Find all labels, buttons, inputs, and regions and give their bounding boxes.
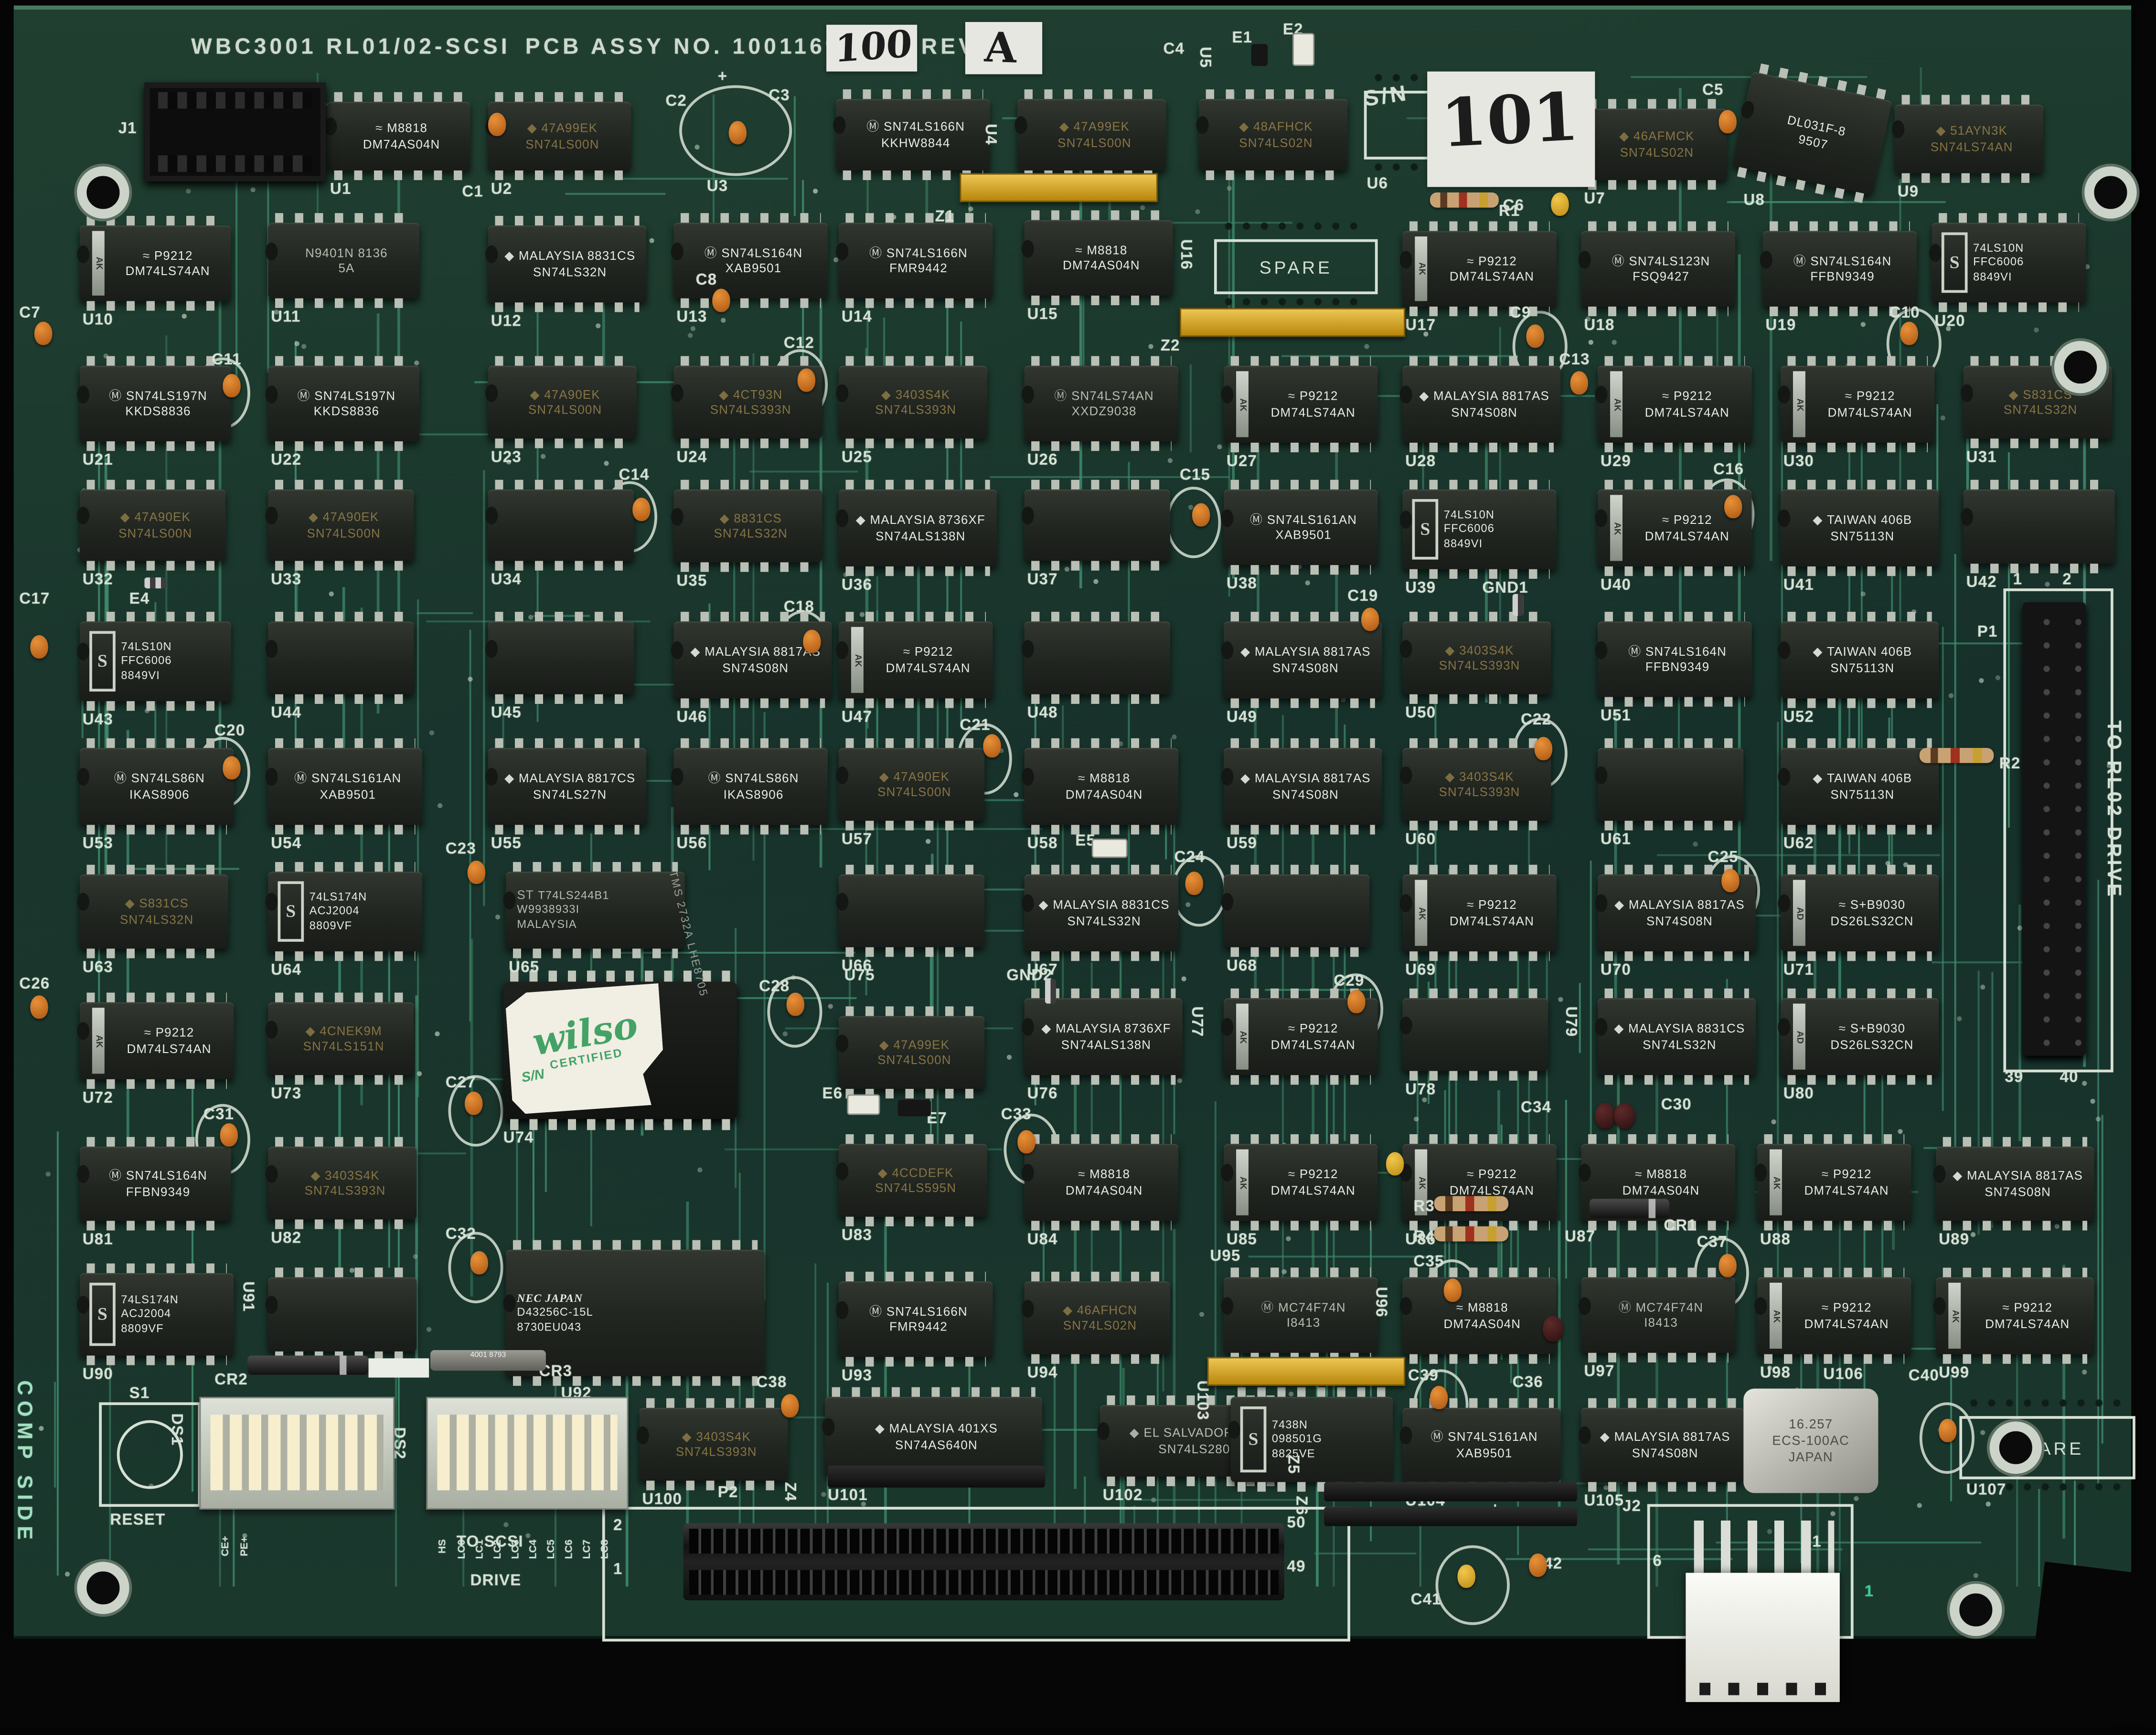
chip-marking-line: ⓂSN74LS166N [850, 1304, 987, 1319]
chip-notch [836, 510, 848, 527]
chip-U26: ⓂSN74LS74ANXXDZ9038 [1025, 366, 1178, 441]
capacitor [798, 369, 815, 392]
chip-notch [836, 766, 848, 783]
chip-notch [1221, 509, 1233, 526]
chip-U39: S74LS10NFFC60068849VI [1402, 490, 1556, 569]
silk-label-U74: U74 [503, 1130, 534, 1147]
chip-marking-line: SN74LS393N [651, 1445, 782, 1459]
ref-label-U60: U60 [1405, 832, 1436, 849]
chip-notch [833, 116, 846, 134]
silk-label-C22: C22 [1521, 712, 1551, 729]
chip-marking-line: DM74LS74AN [1254, 1183, 1372, 1197]
chip-marking: ≈P9212DM74LS74AN [1787, 1150, 1906, 1215]
band-text: AK [94, 1034, 103, 1047]
assy-number-sticker: 100 [826, 25, 917, 72]
crystal-oscillator-u106: 16.257 ECS-100AC JAPAN [1743, 1389, 1878, 1493]
reset-label: RESET [110, 1512, 165, 1529]
jumper [1092, 839, 1128, 858]
chip-U100: ◆3403S4KSN74LS393N [640, 1408, 788, 1481]
ref-label-U4: U4 [982, 124, 998, 145]
spare-label: SPARE [1259, 256, 1333, 277]
chip-marking: ≈P9212DM74LS74AN [110, 1008, 228, 1074]
chip-marking-line: ⓂSN74LS123N [1592, 254, 1730, 268]
ti-logo-icon: ◆ [504, 771, 514, 785]
chip-marking-line: ◆48AFHCK [1210, 119, 1342, 134]
capacitor [1529, 1554, 1547, 1577]
ns-logo-icon: ≈ [1288, 389, 1295, 403]
capacitor [488, 113, 506, 136]
ref-label-U76: U76 [1027, 1086, 1057, 1103]
chip-notch [1595, 1018, 1607, 1036]
chip-marking-line: DM74LS74AN [1628, 529, 1746, 543]
chip-marking-line: ◆MALAYSIA 8817AS [1947, 1169, 2089, 1183]
ref-label-U18: U18 [1584, 318, 1614, 334]
capacitor [465, 1092, 482, 1115]
chip-marking-line: 74LS174N [310, 891, 417, 904]
chip-notch [1400, 1426, 1412, 1444]
chip-U23: ◆47A90EKSN74LS00N [488, 366, 637, 439]
chip-marking-line: DM74LS74AN [1433, 269, 1551, 284]
ref-label-U95: U95 [1210, 1248, 1240, 1265]
chip-marking: ◆MALAYSIA 8736XFSN74ALS138N [1035, 1004, 1177, 1070]
chip-marking: 74LS174NACJ20048809VF [310, 877, 417, 946]
silk-label-C37: C37 [1697, 1235, 1727, 1251]
ref-label-U29: U29 [1601, 454, 1631, 470]
chip-marking-line: FSQ9427 [1592, 269, 1730, 284]
chip-notch [77, 507, 89, 524]
chip-marking-line: SN75113N [1792, 529, 1933, 543]
chip-marking-line: ⓂSN74LS197N [279, 388, 414, 403]
chip-marking-line: ◆4CNEK9M [279, 1023, 408, 1038]
chip-marking: ◆47A90EKSN74LS00N [91, 495, 220, 555]
ref-label-U88: U88 [1760, 1232, 1791, 1248]
silk-label-: + [718, 69, 728, 85]
capacitor [1192, 503, 1210, 527]
chip-marking: ◆TAIWAN 406BSN75113N [1792, 627, 1933, 693]
chip-marking-line: SN74S08N [1235, 660, 1377, 675]
chip-marking-line: DS26LS32CN [1811, 914, 1933, 928]
chip-notch [1579, 1297, 1591, 1314]
silk-label-C31: C31 [203, 1107, 234, 1123]
led-bar-display [426, 1397, 628, 1510]
ref-label-U100: U100 [642, 1491, 682, 1508]
chip-marking-line: ≈S+B9030 [1811, 1022, 1933, 1036]
chip-marking-line: XAB9501 [279, 787, 416, 801]
chip-marking: ◆3403S4KSN74LS393N [850, 371, 982, 433]
chip-marking-line: DM74LS74AN [1433, 1183, 1551, 1197]
ref-label-U1: U1 [330, 181, 352, 198]
chip-marking-line: NEC JAPAN [517, 1292, 759, 1305]
chip-notch [1961, 383, 1973, 401]
silk-label-LC4: LC4 [527, 1540, 539, 1559]
silk-label-S1: S1 [129, 1386, 150, 1403]
chip-marking-line: SN74LS00N [499, 137, 626, 151]
chip-marking-line: ◆MALAYSIA 8817CS [499, 771, 641, 786]
chip-notch [1015, 116, 1027, 134]
ns-logo-icon: ≈ [2002, 1300, 2009, 1314]
chip-marking: ≈P9212DM74LS74AN [1254, 371, 1372, 437]
chip-marking: ◆3403S4KSN74LS393N [1413, 754, 1545, 816]
ti-logo-icon: ◆ [1619, 129, 1629, 143]
chip-marking: ≈M8818DM74AS04N [1413, 1283, 1551, 1349]
chip-marking-line: ◆47A99EK [1028, 119, 1160, 134]
sip-socket-strip [1324, 1507, 1577, 1526]
chip-notch [836, 1300, 848, 1318]
ref-label-U83: U83 [842, 1228, 872, 1245]
capacitor [1185, 872, 1203, 895]
ref-label-U15: U15 [1027, 307, 1057, 323]
capacitor [1444, 1278, 1462, 1302]
ref-label-U63: U63 [83, 959, 113, 976]
chip-marking-line: SN74LS02N [1210, 136, 1342, 150]
silk-label-C2: C2 [665, 94, 687, 110]
chip-marking-line: ⓂSN74LS74AN [1035, 388, 1173, 403]
ti-logo-icon: ◆ [1614, 1022, 1624, 1035]
chip-marking-line: DM74LS74AN [1966, 1316, 2089, 1331]
chip-U61 [1598, 748, 1743, 821]
signetics-logo-icon: S [89, 631, 116, 692]
silk-label-C15: C15 [1180, 468, 1210, 484]
chip-marking-line: DM74AS04N [338, 137, 465, 151]
chip-notch [1400, 250, 1412, 268]
chip-marking: ◆47A99EKSN74LS00N [1028, 105, 1160, 165]
chip-marking-line: ACJ2004 [310, 905, 417, 918]
silk-label-DS1: DS1 [168, 1413, 184, 1446]
mot-logo-icon: Ⓜ [1628, 644, 1641, 658]
chip-marking: ⓂSN74LS197NKKDS8836 [279, 371, 414, 436]
jumper [1513, 594, 1524, 616]
chip-marking: ≈P9212DM74LS74AN [1811, 371, 1929, 437]
mot-logo-icon: Ⓜ [869, 245, 882, 259]
chip-marking [1413, 1004, 1543, 1066]
mot-logo-icon: Ⓜ [1619, 1300, 1632, 1314]
chip-band: AK [1610, 495, 1622, 561]
chip-U78 [1402, 998, 1548, 1071]
chip-U51: ⓂSN74LS164NFFBN9349 [1598, 621, 1751, 697]
capacitor [1535, 737, 1552, 760]
silk-label-Z5: Z5 [1284, 1455, 1301, 1474]
chip-marking [1609, 754, 1738, 816]
silk-label-U6: U6 [1367, 176, 1388, 192]
chip-marking: 74LS10NFFC60068849VI [1444, 495, 1551, 564]
mot-logo-icon: Ⓜ [1431, 1430, 1444, 1444]
silk-label-U106: U106 [1823, 1367, 1863, 1384]
chip-U35: ◆8831CSSN74LS32N [674, 490, 822, 563]
chip-marking-line: SN74LS393N [279, 1184, 411, 1198]
socket-hole-row [1219, 296, 1366, 308]
silk-label-C5: C5 [1702, 83, 1724, 99]
chip-marking: ⓂSN74LS164NFFBN9349 [1609, 627, 1746, 692]
chip-marking-line: ⓂSN74LS161AN [1235, 512, 1372, 526]
chip-notch [1022, 639, 1034, 657]
chip-band: AK [92, 1008, 105, 1074]
band-text: AK [1416, 1176, 1426, 1189]
chip-notch [671, 641, 683, 659]
chip-marking-line: DM74LS74AN [1811, 405, 1929, 419]
chip-marking: ◆47A99EKSN74LS00N [850, 1022, 979, 1084]
silk-label-P1: P1 [1977, 624, 1998, 641]
ti-logo-icon: ◆ [1445, 643, 1455, 657]
chip-notch [1400, 766, 1412, 783]
sticker-sn-text: S/N [520, 1067, 545, 1086]
chip-notch [1022, 239, 1034, 257]
silk-label-C24: C24 [1174, 850, 1205, 866]
silk-label-C19: C19 [1347, 588, 1378, 605]
crystal-frequency: 16.257 [1789, 1417, 1833, 1432]
chip-notch [1022, 768, 1034, 786]
eprom-u74: wilso CERTIFIED S/N TMS 2732A LHE8705 [503, 981, 737, 1119]
chip-marking-line: N9401N 8136 [279, 245, 414, 260]
chip-notch [266, 893, 278, 911]
chip-U15: ≈M8818DM74AS04N [1025, 220, 1173, 296]
capacitor [1719, 110, 1737, 133]
silk-label-CR1: CR1 [1664, 1218, 1697, 1235]
ti-logo-icon: ◆ [1419, 389, 1429, 403]
ti-logo-icon: ◆ [1130, 1426, 1140, 1439]
chip-marking-line: ◆MALAYSIA 8736XF [850, 513, 992, 527]
chip-marking-line: DM74LS74AN [110, 1042, 228, 1056]
chip-U56: ⓂSN74LS86NIKAS8906 [674, 748, 828, 825]
chip-marking-line: DM74LS74AN [1628, 405, 1746, 419]
serial-handwritten-value: 101 [1439, 79, 1581, 163]
chip-marking: ◆51AYN3KSN74LS74AN [1906, 110, 2038, 168]
chip-marking: ≈P9212DM74LS74AN [110, 231, 225, 296]
chip-U12: ◆MALAYSIA 8831CSSN74LS32N [488, 225, 646, 302]
ref-label-U42: U42 [1966, 575, 1997, 591]
chip-U27: AK≈P9212DM74LS74AN [1224, 366, 1377, 443]
assy-label: PCB ASSY NO. 1001169- [525, 36, 852, 61]
chip-band: AK [1770, 1150, 1782, 1215]
ns-logo-icon: ≈ [1467, 898, 1474, 912]
chip-band: AK [1236, 1150, 1249, 1215]
chip-U48 [1025, 621, 1170, 694]
chip-marking: ◆MALAYSIA 401XSSN74AS640N [836, 1402, 1036, 1471]
chip-marking-line: ≈M8818 [1035, 1167, 1173, 1182]
capacitor [1458, 1565, 1475, 1588]
ti-logo-icon: ◆ [504, 249, 514, 263]
silk-label-R1: R1 [1499, 203, 1520, 220]
chip-notch [637, 1426, 649, 1443]
chip-notch [836, 383, 848, 401]
resistor [1920, 748, 1994, 763]
chip-marking-line: ≈P9212 [1966, 1300, 2089, 1315]
chip-notch [1892, 120, 1904, 138]
silk-bar [369, 1358, 429, 1377]
chip-marking: ◆MALAYSIA 8817CSSN74LS27N [499, 754, 641, 820]
mot-logo-icon: Ⓜ [869, 1304, 882, 1318]
chip-U4: ◆47A99EKSN74LS00N [1017, 99, 1166, 170]
chip-U18: ⓂSN74LS123NFSQ9427 [1581, 231, 1735, 307]
silk-label-U16: U16 [1177, 239, 1194, 270]
chip-marking-line: ◆47A99EK [499, 121, 626, 135]
diode [247, 1355, 368, 1374]
ref-label-U8: U8 [1743, 192, 1765, 209]
chip-U63: ◆S831CSSN74LS32N [80, 874, 228, 948]
resistor-network [1180, 308, 1405, 337]
chip-marking-line: ◆3403S4K [1413, 643, 1545, 657]
chip-marking-line: DM74LS74AN [869, 660, 987, 675]
ref-label-U30: U30 [1783, 454, 1814, 470]
ref-label-U3: U3 [707, 179, 728, 195]
silk-label-LC3: LC3 [509, 1540, 521, 1559]
chip-band: AK [1236, 371, 1249, 437]
chip-notch [1022, 1164, 1034, 1182]
silk-label-R3: R3 [1413, 1199, 1435, 1215]
chip-marking-line: SN74LS02N [1592, 145, 1722, 160]
chip-U10: AK≈P9212DM74LS74AN [80, 225, 231, 301]
capacitor [1543, 1316, 1563, 1342]
chip-marking-line: SN74S08N [1592, 1446, 1738, 1460]
chip-band: AK [1793, 371, 1805, 437]
chip-marking-line: FFC6006 [121, 655, 225, 668]
chip-marking-line: I8413 [1592, 1316, 1730, 1330]
ref-label-U20: U20 [1934, 313, 1965, 330]
ref-label-U73: U73 [271, 1086, 301, 1103]
chip-marking-line: ≈P9212 [1433, 898, 1551, 912]
chip-marking-line: FFC6006 [1973, 256, 2081, 269]
chip-marking: ⓂMC74F74NI8413 [1592, 1283, 1730, 1347]
chip-marking-line: ⓂMC74F74N [1592, 1300, 1730, 1314]
chip-notch [1754, 1164, 1767, 1182]
chip-marking-line: 8849VI [1973, 270, 2081, 283]
ti-logo-icon: ◆ [691, 645, 701, 659]
chip-marking-line: ⓂSN74LS164N [1774, 254, 1911, 268]
chip-marking-line: ⓂMC74F74N [1235, 1300, 1372, 1314]
chip-marking: ◆MALAYSIA 8817ASSN74S08N [1235, 627, 1377, 693]
chip-marking: ◆3403S4KSN74LS393N [279, 1152, 411, 1214]
chip-marking-line: FMR9442 [850, 1320, 987, 1334]
chip-band: AK [851, 627, 864, 693]
chip-marking-line: 5A [279, 261, 414, 276]
chip-marking-line: 74LS10N [1973, 242, 2081, 255]
silk-label-CE: CE+ [219, 1536, 231, 1556]
chip-notch [1760, 250, 1772, 268]
chip-notch [1022, 1018, 1034, 1036]
band-text: AD [1794, 1030, 1804, 1043]
chip-U71: AD≈S+B9030DS26LS32CN [1781, 874, 1939, 951]
chip-U82: ◆3403S4KSN74LS393N [268, 1147, 416, 1220]
chip-marking: ◆S831CSSN74LS32N [91, 880, 223, 943]
chip-band: AK [1610, 371, 1622, 437]
silk-label-C36: C36 [1513, 1375, 1543, 1392]
chip-marking-line: SN74LS00N [279, 526, 408, 540]
ns-logo-icon: ≈ [1467, 1167, 1474, 1181]
ref-label-U9: U9 [1898, 184, 1919, 201]
jumper [1045, 979, 1056, 1004]
chip-U11: N9401N 81365A [268, 223, 419, 298]
ref-label-U79: U79 [1562, 1006, 1579, 1037]
chip-marking-line: ≈P9212 [1811, 389, 1929, 404]
chip-marking-line: KKHW8844 [847, 136, 984, 150]
chip-marking [1235, 880, 1364, 942]
mot-logo-icon: Ⓜ [1054, 388, 1067, 402]
ref-label-U81: U81 [83, 1232, 113, 1248]
capacitor [1430, 1386, 1448, 1409]
mounting-hole [1950, 1584, 2002, 1636]
connector-p1-header [2023, 602, 2086, 1056]
chip-marking: STT74LS244B1W9938933IMALAYSIA [517, 877, 679, 943]
ns-logo-icon: ≈ [1662, 389, 1669, 403]
ref-label-U48: U48 [1027, 705, 1057, 722]
ti-logo-icon: ◆ [1953, 1169, 1963, 1182]
ref-label-U58: U58 [1027, 836, 1057, 852]
ti-logo-icon: ◆ [306, 1023, 316, 1037]
chip-marking-line: SN74LS32N [91, 912, 223, 926]
chip-notch [266, 1020, 278, 1038]
chip-U80: AD≈S+B9030DS26LS32CN [1781, 998, 1939, 1075]
chip-notch [836, 1034, 848, 1052]
chip-marking: DL031F-89507 [1744, 79, 1886, 189]
chip-notch [1595, 766, 1607, 783]
ref-label-U55: U55 [491, 836, 522, 852]
ref-label-U23: U23 [491, 449, 522, 466]
silk-label-C30: C30 [1661, 1097, 1692, 1114]
capacitor [983, 734, 1001, 757]
capacitor [30, 635, 48, 659]
resistor [1434, 1226, 1508, 1242]
ns-logo-icon: ≈ [903, 645, 910, 659]
chip-notch [1228, 1421, 1240, 1438]
scan-edge-right [2142, 6, 2156, 1702]
ref-label-U51: U51 [1601, 708, 1631, 725]
silk-label-E1: E1 [1232, 30, 1252, 47]
mounting-hole [2084, 166, 2136, 218]
chip-marking: ≈P9212DM74LS74AN [1787, 1283, 1906, 1349]
mot-logo-icon: Ⓜ [708, 771, 721, 785]
ti-logo-icon: ◆ [1936, 124, 1946, 138]
chip-marking: ⓂSN74LS166NFMR9442 [850, 228, 987, 293]
silk-label-C34: C34 [1521, 1100, 1551, 1117]
silk-label-LC2: LC2 [491, 1540, 503, 1559]
chip-marking-line: ◆47A99EK [850, 1037, 979, 1052]
chip-U2: ◆47A99EKSN74LS00N [488, 102, 631, 170]
chip-marking-line: ⓂSN74LS164N [91, 1169, 225, 1183]
chip-marking-line: ≈P9212 [1433, 1167, 1551, 1182]
chip-U32: ◆47A90EKSN74LS00N [80, 490, 225, 561]
chip-notch [1196, 116, 1209, 134]
sip-socket-strip [828, 1466, 1045, 1488]
silk-label-1: 1 [1812, 1534, 1822, 1551]
chip-notch [1221, 1018, 1233, 1036]
led-segments [437, 1415, 617, 1490]
ref-label-U52: U52 [1783, 709, 1814, 726]
chip-marking: ⓂSN74LS161ANXAB9501 [1413, 1413, 1555, 1476]
chip-marking: ◆8831CSSN74LS32N [685, 495, 817, 557]
chip-marking: ◆MALAYSIA 8817ASSN74S08N [1592, 1413, 1738, 1476]
ref-label-U64: U64 [271, 962, 301, 979]
chip-marking-line: SN74S08N [1609, 914, 1750, 928]
ref-label-U39: U39 [1405, 580, 1436, 597]
chip-U96: ≈M8818DM74AS04N [1402, 1277, 1556, 1354]
mot-logo-icon: Ⓜ [1612, 254, 1625, 267]
ref-label-U96: U96 [1372, 1287, 1389, 1318]
chip-U85: AK≈P9212DM74LS74AN [1224, 1144, 1377, 1221]
ref-label-U2: U2 [491, 181, 512, 198]
chip-notch [266, 385, 278, 403]
band-text: AK [1238, 398, 1247, 411]
chip-U25: ◆3403S4KSN74LS393N [839, 366, 987, 439]
chip-notch [1961, 508, 1973, 526]
chip-marking-line: SN74LS32N [1035, 914, 1173, 928]
chip-U84: ≈M8818DM74AS04N [1025, 1144, 1178, 1221]
sip-socket-strip [1324, 1482, 1577, 1501]
chip-U53: ⓂSN74LS86NIKAS8906 [80, 748, 234, 825]
chip-marking-line: ◆51AYN3K [1906, 124, 2038, 138]
chip-marking-line: ⓂSN74LS164N [685, 245, 822, 260]
chip-band: AK [1415, 880, 1427, 946]
chip-marking-line: DM74AS04N [1592, 1183, 1730, 1197]
chip-notch [1221, 386, 1233, 404]
